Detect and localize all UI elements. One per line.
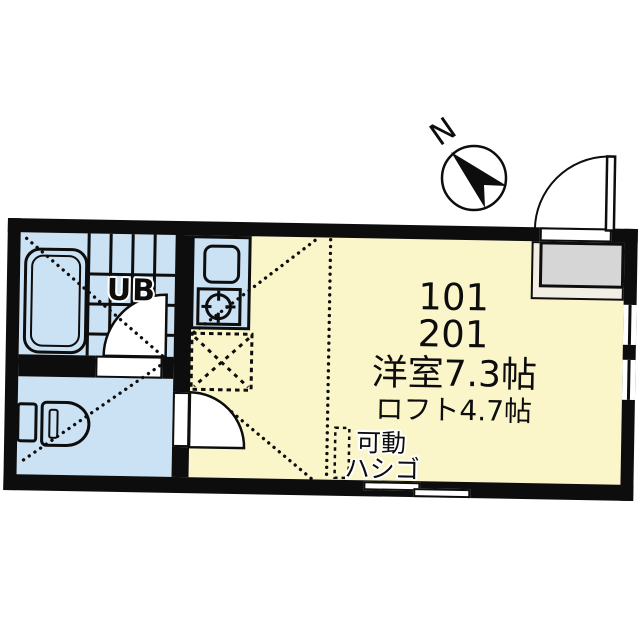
- entrance-door-leaf: [606, 156, 615, 230]
- kitchen-sink: [203, 244, 241, 284]
- entrance-threshold: [540, 227, 612, 242]
- bathtub-inner: [30, 254, 82, 347]
- toilet-tank: [16, 402, 38, 442]
- window-glass-line: [628, 305, 632, 345]
- floor-plan: UB 101 201 洋室7.3帖 ロフト4.7帖 可動 ハシゴ: [3, 218, 638, 501]
- toilet-seat-line: [48, 409, 59, 439]
- ladder-label-line2: ハシゴ: [344, 456, 419, 482]
- entrance-door-arc: [535, 155, 607, 230]
- loft-size-label: ロフト4.7帖: [375, 395, 532, 426]
- unit-number-201: 201: [417, 315, 488, 353]
- bath-door-opening: [95, 356, 162, 379]
- genkan-floor: [539, 241, 625, 288]
- main-room-size-label: 洋室7.3帖: [371, 355, 537, 394]
- window-bottom-pane-right: [413, 488, 470, 498]
- window-glass-line: [627, 360, 631, 400]
- unit-number-101: 101: [418, 278, 489, 316]
- stove: [196, 287, 242, 326]
- window-right-upper: [623, 305, 637, 345]
- toilet-door-opening: [172, 392, 190, 447]
- ladder-label-line1: 可動: [356, 430, 406, 456]
- window-right-lower: [622, 360, 636, 400]
- unit-bath-label: UB: [106, 276, 156, 307]
